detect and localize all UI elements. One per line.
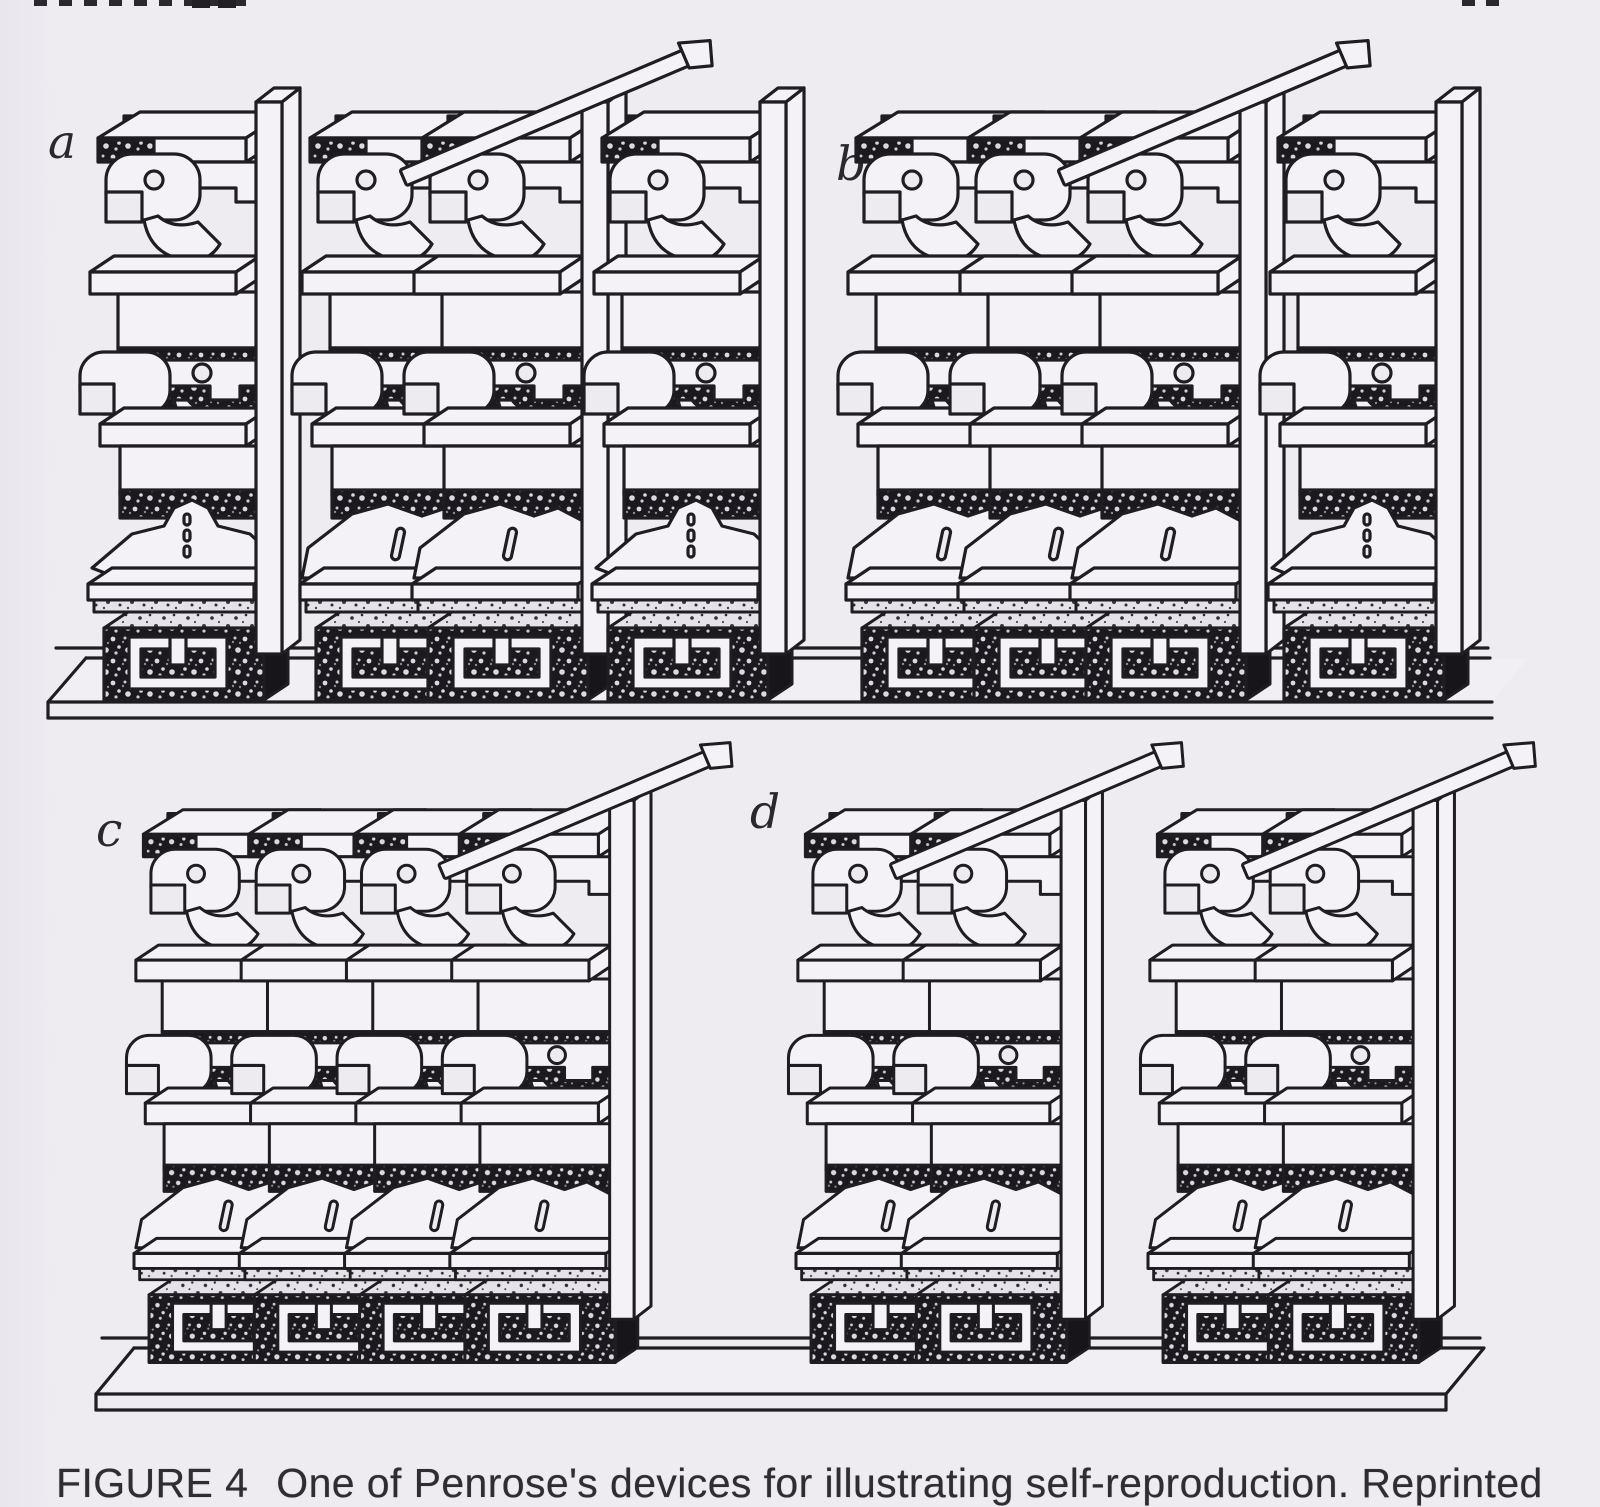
panel-d: d [750, 734, 1542, 1363]
panel-a-label: a [48, 115, 76, 170]
machine-unit-group [788, 734, 1190, 1363]
figure-caption-number: FIGURE 4 [56, 1460, 248, 1506]
scanned-book-page: { "figure": { "caption": { "label": "FIG… [0, 0, 1600, 1500]
machine-unit-group [584, 88, 804, 700]
panel-c-label: c [96, 803, 122, 858]
figure-4-illustration: a b c d [0, 0, 1600, 1445]
panel-c: c [96, 734, 739, 1363]
figure-caption-text: One of Penrose's devices for illustratin… [276, 1460, 1542, 1506]
machine-unit-group [126, 734, 738, 1363]
machine-unit-group [80, 88, 300, 700]
machine-unit-group [1140, 734, 1542, 1363]
panel-d-label: d [750, 785, 780, 840]
panel-b: b [836, 31, 1480, 700]
panel-a: a [48, 31, 804, 700]
machine-unit-group [1260, 88, 1480, 700]
